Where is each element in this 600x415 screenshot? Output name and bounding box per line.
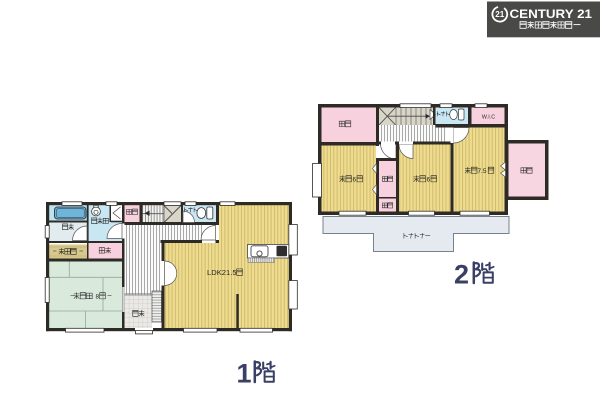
svg-text:LDK21.5: LDK21.5: [207, 268, 237, 277]
svg-text:W.I.C: W.I.C: [482, 114, 495, 120]
svg-text:6: 6: [427, 176, 431, 183]
svg-text:2: 2: [454, 260, 469, 290]
svg-text:8: 8: [96, 293, 100, 300]
svg-text:7.5: 7.5: [478, 168, 487, 175]
svg-text:1: 1: [237, 359, 252, 389]
svg-text:CENTURY 21: CENTURY 21: [510, 7, 593, 21]
svg-text:6: 6: [353, 176, 357, 183]
svg-text:21: 21: [495, 10, 505, 19]
